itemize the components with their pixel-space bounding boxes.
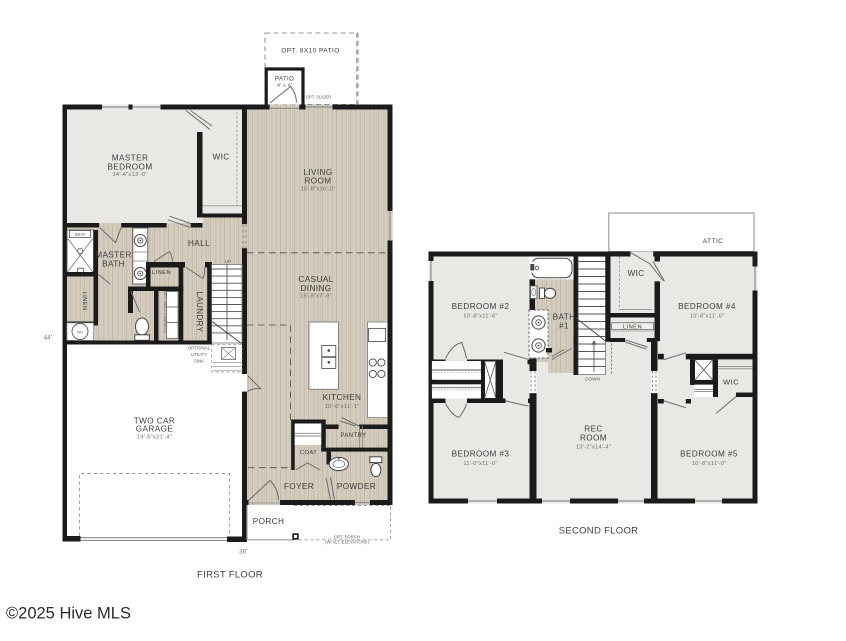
svg-text:OPTIONAL: OPTIONAL bbox=[188, 346, 211, 351]
svg-text:OPT. SLIDER: OPT. SLIDER bbox=[306, 95, 332, 100]
svg-text:10'-8"x11'-0": 10'-8"x11'-0" bbox=[692, 461, 727, 467]
svg-text:WIC: WIC bbox=[723, 378, 739, 387]
svg-text:SECOND FLOOR: SECOND FLOOR bbox=[559, 526, 639, 537]
svg-text:GARAGE: GARAGE bbox=[136, 425, 174, 434]
svg-text:PATIO: PATIO bbox=[275, 77, 294, 83]
svg-text:BATH: BATH bbox=[553, 313, 576, 322]
svg-text:10'-6"x11'-1": 10'-6"x11'-1" bbox=[325, 404, 360, 410]
svg-text:BEDROOM #2: BEDROOM #2 bbox=[452, 302, 510, 311]
svg-text:15'-8"x7'-9": 15'-8"x7'-9" bbox=[300, 294, 332, 300]
svg-text:11'-0"x11'-0": 11'-0"x11'-0" bbox=[463, 461, 497, 467]
svg-text:OPT. 8X10 PATIO: OPT. 8X10 PATIO bbox=[281, 48, 340, 55]
svg-text:COAT: COAT bbox=[300, 450, 317, 456]
svg-text:4' x 4': 4' x 4' bbox=[277, 83, 292, 89]
svg-text:ROOM: ROOM bbox=[304, 177, 331, 186]
svg-text:MASTER: MASTER bbox=[95, 251, 132, 260]
svg-text:SINK: SINK bbox=[194, 359, 204, 364]
svg-text:15'-8"x16'-0": 15'-8"x16'-0" bbox=[300, 187, 335, 193]
svg-text:LINEN: LINEN bbox=[81, 291, 87, 310]
svg-text:#1: #1 bbox=[559, 322, 569, 331]
svg-text:WIC: WIC bbox=[627, 269, 644, 278]
svg-text:PANTRY: PANTRY bbox=[340, 433, 366, 439]
svg-text:LINEN: LINEN bbox=[152, 270, 171, 276]
svg-text:BEDROOM: BEDROOM bbox=[107, 163, 152, 172]
svg-text:CASUAL: CASUAL bbox=[298, 275, 333, 284]
svg-text:SEAT: SEAT bbox=[75, 232, 86, 237]
svg-text:14'-4"x13'-0": 14'-4"x13'-0" bbox=[112, 172, 147, 178]
svg-text:(W/ ALT. ELEVATIONS): (W/ ALT. ELEVATIONS) bbox=[325, 540, 369, 545]
svg-text:KITCHEN: KITCHEN bbox=[323, 393, 362, 402]
svg-text:36': 36' bbox=[239, 549, 248, 556]
svg-text:WIC: WIC bbox=[212, 153, 229, 162]
svg-text:MASTER: MASTER bbox=[112, 154, 149, 163]
svg-text:HALL: HALL bbox=[188, 239, 210, 248]
svg-text:13'-2"x14'-4": 13'-2"x14'-4" bbox=[576, 445, 611, 451]
svg-text:10'-8"x11'-6": 10'-8"x11'-6" bbox=[463, 314, 498, 320]
svg-text:BEDROOM #4: BEDROOM #4 bbox=[678, 302, 736, 311]
svg-text:BEDROOM #3: BEDROOM #3 bbox=[452, 450, 510, 459]
svg-text:LAUNDRY: LAUNDRY bbox=[195, 292, 204, 333]
svg-text:WH: WH bbox=[77, 331, 83, 335]
svg-text:10'-8"x11'-6": 10'-8"x11'-6" bbox=[690, 314, 725, 320]
svg-text:ROOM: ROOM bbox=[580, 434, 607, 443]
svg-text:DOWN: DOWN bbox=[585, 377, 600, 382]
svg-text:BATH: BATH bbox=[102, 260, 125, 269]
svg-text:UP: UP bbox=[225, 259, 231, 264]
svg-text:©2025 Hive MLS: ©2025 Hive MLS bbox=[6, 605, 131, 623]
svg-text:FIRST FLOOR: FIRST FLOOR bbox=[197, 570, 263, 581]
svg-text:LINEN: LINEN bbox=[623, 325, 642, 331]
svg-text:REC: REC bbox=[584, 425, 603, 434]
svg-text:19'-5"x21'-4": 19'-5"x21'-4" bbox=[137, 435, 172, 441]
svg-text:UTILITY: UTILITY bbox=[191, 352, 207, 357]
svg-text:POWDER: POWDER bbox=[337, 482, 376, 491]
svg-text:PORCH: PORCH bbox=[253, 517, 285, 526]
svg-text:BEDROOM #5: BEDROOM #5 bbox=[680, 450, 738, 459]
svg-text:FOYER: FOYER bbox=[284, 482, 314, 491]
svg-text:DINING: DINING bbox=[300, 284, 331, 293]
svg-text:ATTIC: ATTIC bbox=[703, 238, 724, 245]
svg-text:44': 44' bbox=[44, 335, 53, 342]
